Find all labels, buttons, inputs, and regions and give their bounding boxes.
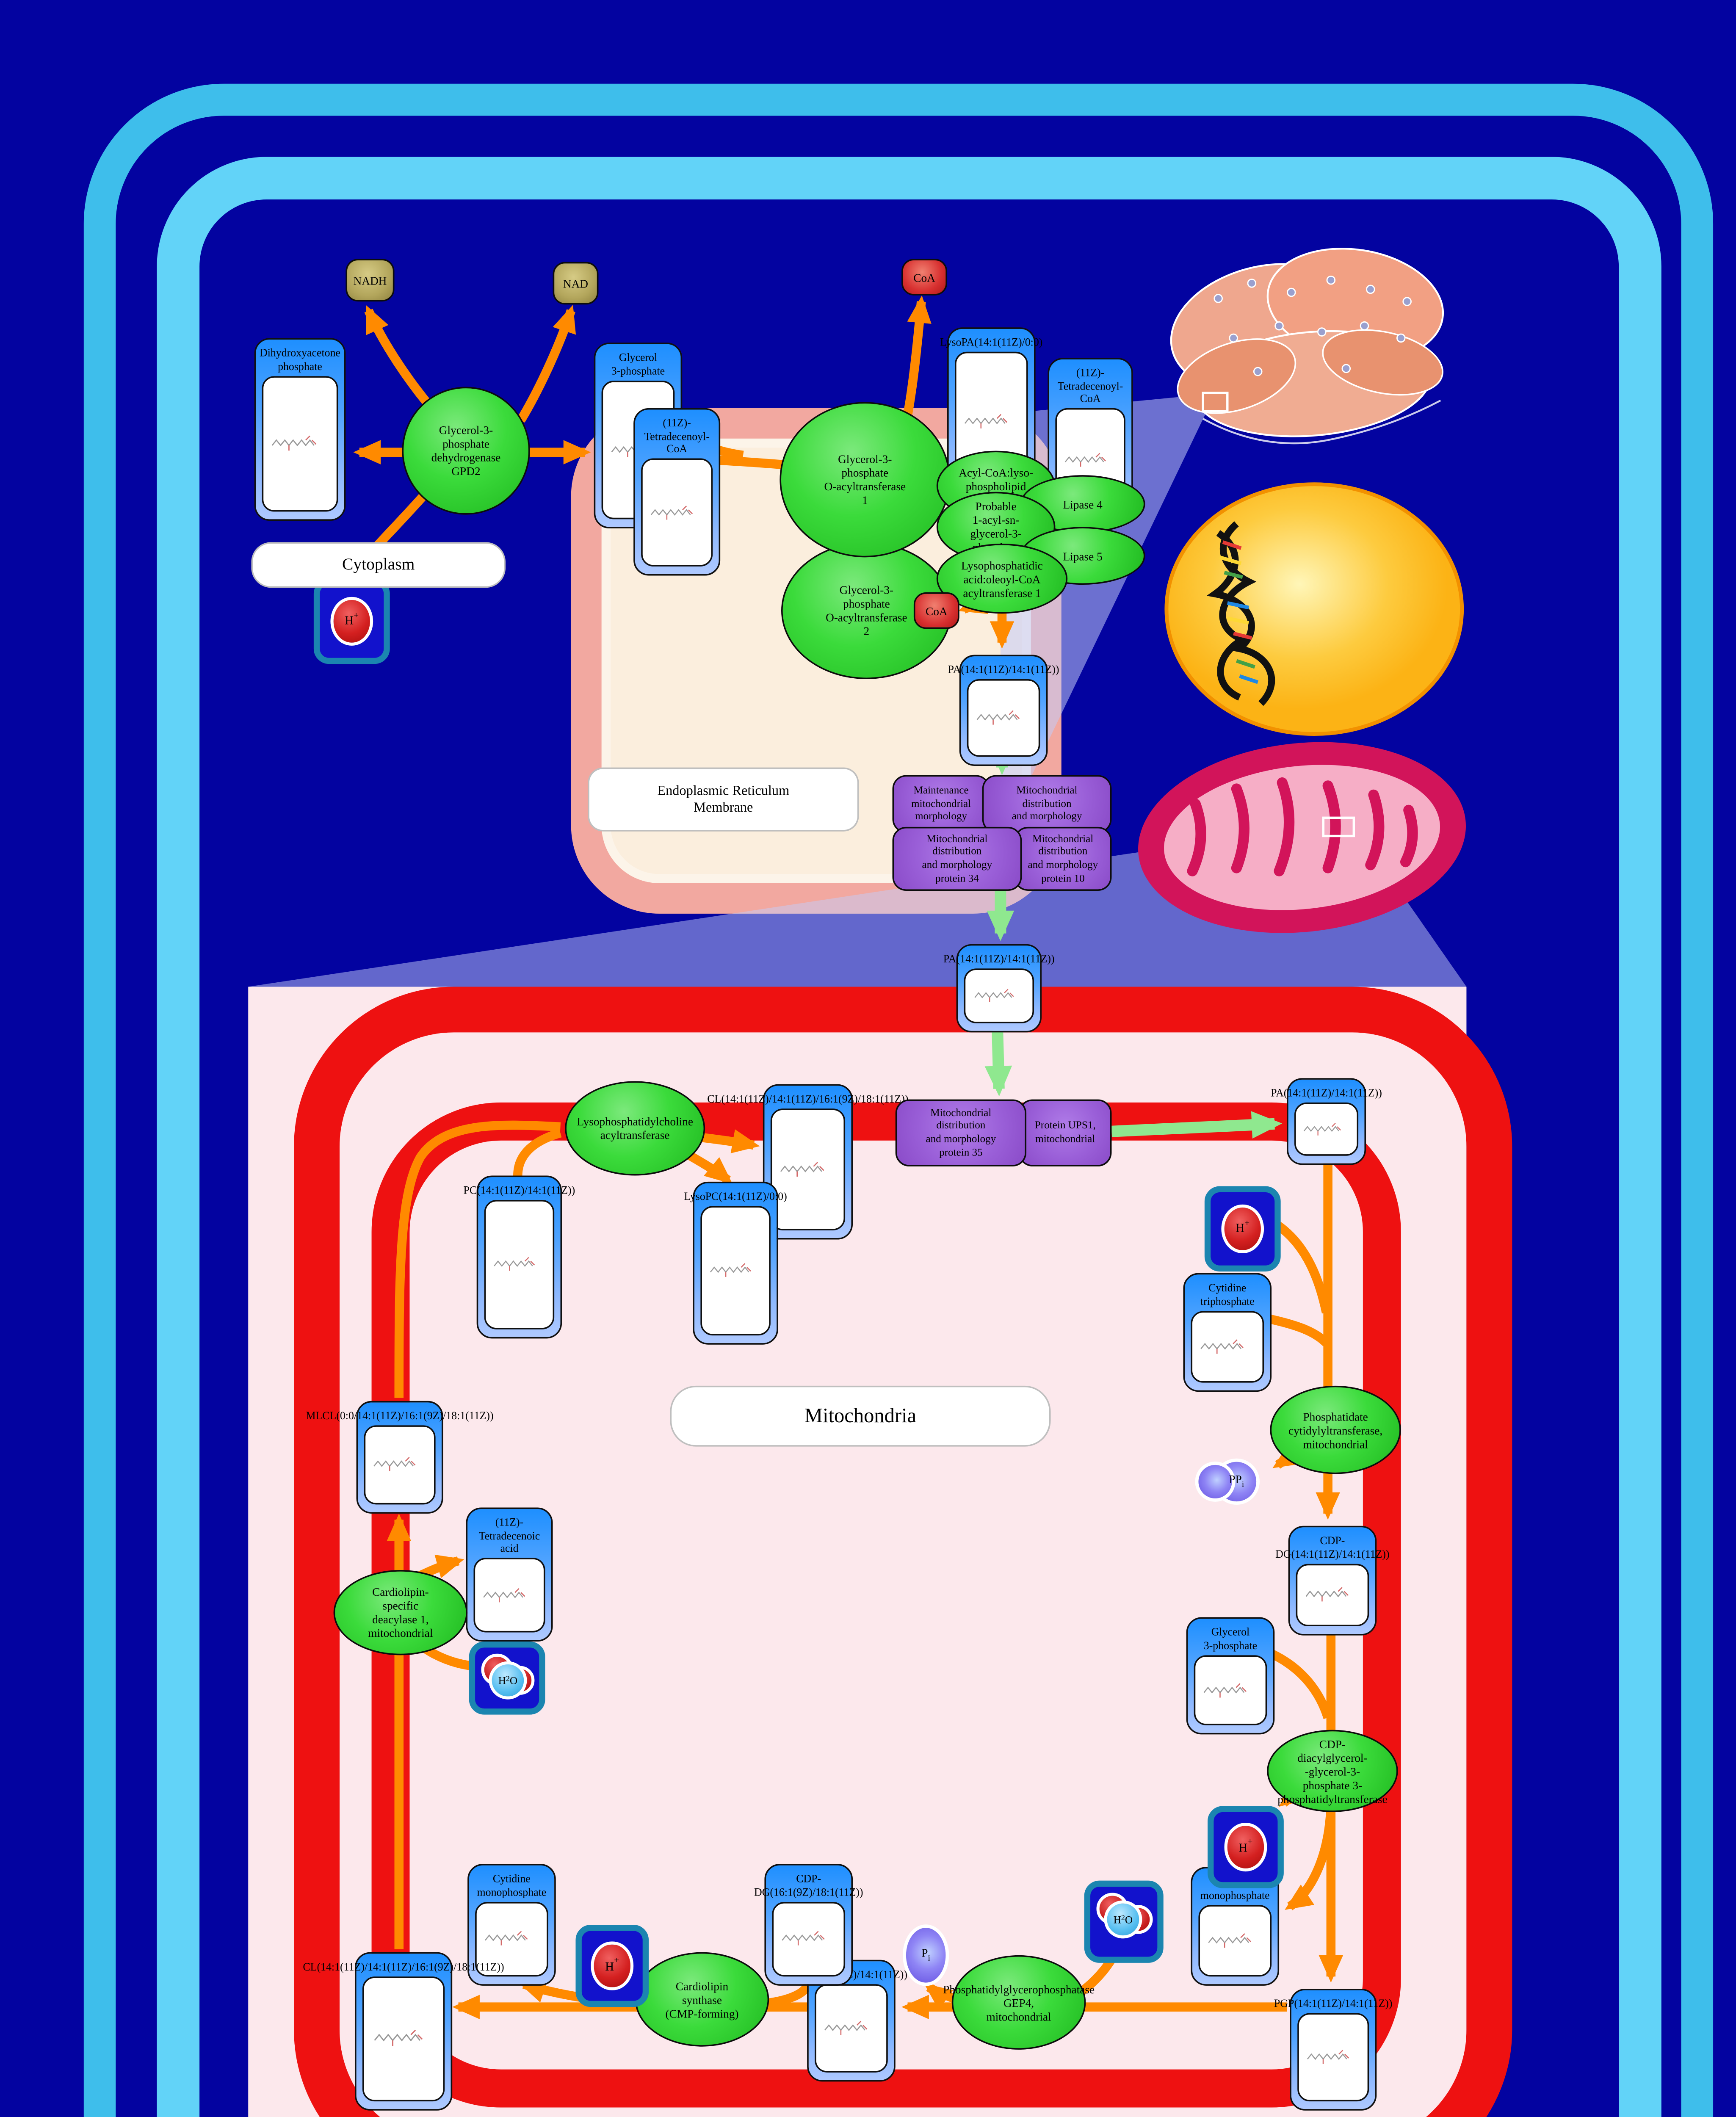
- structure-panel: [362, 1976, 445, 2102]
- metabolite-label: LysoPA(14:1(11Z)/0:0): [763, 337, 1220, 350]
- structure-panel: [700, 1206, 770, 1335]
- protein-mdm-complex[interactable]: Mitochondrial distribution and morpholog…: [982, 775, 1112, 833]
- structure-panel: [967, 679, 1040, 757]
- metabolite-label: (11Z)- Tetradecenoic acid: [281, 1517, 738, 1556]
- h2o-deacylase-icon[interactable]: H2O: [469, 1642, 545, 1715]
- structure-panel: [1297, 2013, 1369, 2101]
- metabolite-mlcl[interactable]: MLCL(0:0/14:1(11Z)/16:1(9Z)/18:1(11Z)): [357, 1401, 443, 1514]
- proton-core: H+: [592, 1942, 633, 1990]
- protein-ups1[interactable]: Protein UPS1, mitochondrial: [1019, 1100, 1111, 1166]
- metabolite-label: PA(14:1(11Z)/14:1(11Z)): [771, 953, 1227, 966]
- protein-mdm10[interactable]: Mitochondrial distribution and morpholog…: [1014, 827, 1111, 891]
- structure-panel: [772, 1901, 845, 1977]
- metabolite-label: LysoPC(14:1(11Z)/0:0): [507, 1191, 964, 1204]
- structure-panel: [1194, 1655, 1267, 1725]
- metabolite-label: Dihydroxyacetone phosphate: [72, 347, 528, 373]
- structure-panel: [1294, 1102, 1358, 1156]
- structure-panel: [484, 1199, 554, 1329]
- proton-core: H+: [330, 596, 373, 646]
- h-plus-cls-icon[interactable]: H+: [575, 1925, 649, 2007]
- metabolite-pc[interactable]: PC(14:1(11Z)/14:1(11Z)): [477, 1175, 562, 1338]
- er-membrane-label: Endoplasmic Reticulum Membrane: [588, 768, 859, 832]
- protein-mdm34[interactable]: Mitochondrial distribution and morpholog…: [893, 827, 1022, 891]
- metabolite-pa-outer-membrane[interactable]: PA(14:1(11Z)/14:1(11Z)): [956, 944, 1042, 1033]
- protein-mmm1[interactable]: Maintenance mitochondrial morphology: [893, 775, 990, 833]
- metabolite-dhap[interactable]: Dihydroxyacetone phosphate: [254, 338, 346, 521]
- h-plus-pgp-icon[interactable]: H+: [1208, 1806, 1284, 1888]
- token-lobe: [1198, 1465, 1232, 1498]
- metabolite-label: (11Z)- Tetradecenoyl- CoA: [862, 367, 1319, 406]
- enzyme-lpcat[interactable]: Lysophosphatidylcholine acyltransferase: [565, 1081, 705, 1176]
- cytoplasm-label: Cytoplasm: [251, 542, 506, 588]
- metabolite-pa-er[interactable]: PA(14:1(11Z)/14:1(11Z)): [959, 655, 1048, 766]
- metabolite-cl-bottom[interactable]: CL(14:1(11Z)/14:1(11Z)/16:1(9Z)/18:1(11Z…: [355, 1952, 452, 2111]
- token-pi[interactable]: Pi: [906, 1928, 946, 1982]
- metabolite-cdp-dg-right[interactable]: CDP- DG(14:1(11Z)/14:1(11Z)): [1288, 1526, 1377, 1636]
- metabolite-cmp-bottom[interactable]: Cytidine monophosphate: [467, 1864, 556, 1986]
- metabolite-label: Glycerol 3-phosphate: [1002, 1626, 1459, 1653]
- structure-panel: [1191, 1310, 1264, 1382]
- structure-panel: [474, 1559, 545, 1633]
- protein-mdm35[interactable]: Mitochondrial distribution and morpholog…: [896, 1100, 1026, 1166]
- proton-core: H+: [1224, 1823, 1267, 1871]
- token-nadh[interactable]: NADH: [346, 259, 394, 301]
- structure-panel: [1198, 1904, 1272, 1976]
- enzyme-gpd2[interactable]: Glycerol-3- phosphate dehydrogenase GPD2: [402, 387, 530, 515]
- structure-panel: [1296, 1563, 1369, 1626]
- token-nad[interactable]: NAD: [553, 262, 599, 305]
- metabolite-pgp[interactable]: PGP(14:1(11Z)/14:1(11Z)): [1290, 1989, 1377, 2111]
- pathway-canvas: Dihydroxyacetone phosphateGlycerol 3-pho…: [0, 0, 1736, 2117]
- metabolite-label: CDP- DG(16:1(9Z)/18:1(11Z)): [580, 1873, 1037, 1899]
- enzyme-gpat1[interactable]: Glycerol-3- phosphate O-acyltransferase …: [780, 402, 950, 557]
- structure-panel: [641, 459, 713, 567]
- metabolite-label: CDP- DG(14:1(11Z)/14:1(11Z)): [1104, 1535, 1561, 1561]
- metabolite-label: Glycerol 3-phosphate: [409, 352, 866, 378]
- metabolite-ctp[interactable]: Cytidine triphosphate: [1183, 1273, 1272, 1392]
- metabolite-g3p-right[interactable]: Glycerol 3-phosphate: [1186, 1617, 1275, 1734]
- structure-panel: [771, 1108, 845, 1230]
- structure-panel: [964, 968, 1034, 1023]
- token-coa-top[interactable]: CoA: [901, 259, 947, 295]
- h2o-gep4-icon[interactable]: H2O: [1084, 1881, 1164, 1963]
- enzyme-gep4[interactable]: Phosphatidylglycerophosphatase GEP4, mit…: [952, 1955, 1086, 2050]
- enzyme-cardiolipin-synthase[interactable]: Cardiolipin synthase (CMP-forming): [635, 1952, 769, 2047]
- water-molecule: H2O: [1090, 1887, 1157, 1957]
- enzyme-phosphatidate-ct[interactable]: Phosphatidate cytidylyltransferase, mito…: [1270, 1386, 1401, 1474]
- proton-core: H+: [1221, 1204, 1264, 1254]
- enzyme-cardiolipin-deacylase[interactable]: Cardiolipin- specific deacylase 1, mitoc…: [334, 1570, 467, 1655]
- metabolite-label: MLCL(0:0/14:1(11Z)/16:1(9Z)/18:1(11Z)): [171, 1410, 628, 1423]
- metabolite-cdp-dg-bottom[interactable]: CDP- DG(16:1(9Z)/18:1(11Z)): [764, 1864, 853, 1986]
- metabolite-label: PC(14:1(11Z)/14:1(11Z)): [291, 1185, 748, 1198]
- enzyme-cdp-dg-g3p-pt[interactable]: CDP- diacylglycerol- -glycerol-3- phosph…: [1267, 1730, 1398, 1812]
- structure-panel: [262, 376, 338, 512]
- token-ppi[interactable]: PPi: [1217, 1462, 1257, 1502]
- metabolite-pa-inner-membrane[interactable]: PA(14:1(11Z)/14:1(11Z)): [1287, 1078, 1366, 1165]
- token-coa-mid[interactable]: CoA: [914, 592, 959, 629]
- water-molecule: H2O: [475, 1647, 539, 1708]
- metabolite-lysopc[interactable]: LysoPC(14:1(11Z)/0:0): [693, 1182, 778, 1345]
- metabolite-label: Cytidine triphosphate: [999, 1282, 1456, 1308]
- metabolite-label: Cytidine monophosphate: [283, 1873, 740, 1899]
- mitochondria-label: Mitochondria: [670, 1386, 1050, 1447]
- metabolite-tetradecenoyl-coa-er[interactable]: (11Z)- Tetradecenoyl- CoA: [633, 408, 720, 576]
- metabolite-label: PGP(14:1(11Z)/14:1(11Z)): [1105, 1998, 1562, 2011]
- structure-panel: [475, 1901, 548, 1977]
- structure-panel: [364, 1425, 436, 1505]
- structure-panel: [815, 1984, 888, 2073]
- metabolite-tetradecenoic-acid[interactable]: (11Z)- Tetradecenoic acid: [466, 1508, 553, 1642]
- h-plus-ctp-icon[interactable]: H+: [1205, 1186, 1281, 1271]
- metabolite-label: PA(14:1(11Z)/14:1(11Z)): [1098, 1087, 1555, 1100]
- metabolite-label: CL(14:1(11Z)/14:1(11Z)/16:1(9Z)/18:1(11Z…: [175, 1961, 632, 1974]
- h-plus-cytoplasm-icon[interactable]: H+: [314, 579, 390, 664]
